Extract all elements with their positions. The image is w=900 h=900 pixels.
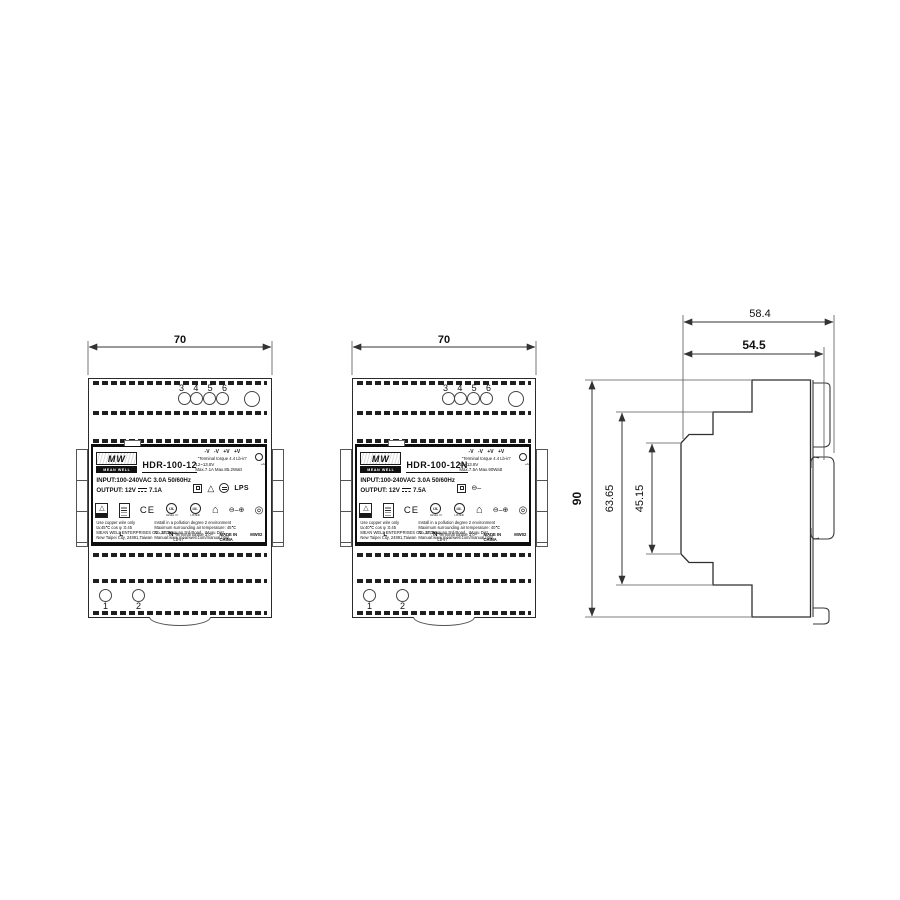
width-dimension-label: 70 (174, 334, 186, 346)
depth-body-label: 54.5 (742, 338, 766, 352)
inner-height-label: 63.65 (604, 485, 616, 513)
side-profile-outline (681, 380, 811, 617)
terminal-hole (216, 392, 229, 405)
culus-listed-icon: UL LISTED (189, 503, 202, 519)
dc-polarity-icon: ⊖–⊕ (229, 507, 245, 514)
din-rail-hook-top (811, 457, 819, 468)
vent-slots (357, 553, 531, 557)
output-rating: OUTPUT: 12V7.1A (96, 487, 162, 494)
vadj-mark: +Adj (525, 462, 531, 466)
vent-slots (357, 611, 531, 615)
cert-circle-icon (219, 483, 229, 493)
vadj-mark: +Adj (261, 462, 267, 466)
terminal-number: 1 (363, 601, 376, 611)
terminal-hole (203, 392, 216, 405)
impedance-protected-icon: ◎ (255, 506, 264, 516)
warning-box-icon: △ (95, 503, 108, 518)
vadj-potentiometer (519, 453, 527, 461)
meanwell-logo-emblem: MW (96, 452, 137, 465)
cert-triangle-icon: △ (207, 484, 214, 493)
terminal-torque-top: "Terminal torque 4.4 Lb-in" (455, 456, 517, 461)
vent-slots (93, 439, 267, 443)
line-terminal-mark: L (119, 532, 123, 538)
terminal-hole (454, 392, 467, 405)
dc-polarity-icon: ⊖– (471, 485, 481, 492)
indoor-use-icon: ⌂ (212, 505, 219, 516)
face-height-label: 45.15 (634, 485, 646, 513)
output-rating: OUTPUT: 12V7.5A (360, 487, 426, 494)
terminal-hole (442, 392, 455, 405)
culus-listed-icon: UL LISTED (453, 503, 466, 519)
warning-box-icon: △ (359, 503, 372, 518)
dc-polarity-icon: ⊖–⊕ (493, 507, 509, 514)
line-terminal-mark: L (383, 532, 387, 538)
vent-slots (357, 411, 531, 415)
front-view-hdr-100-12n: 70 3 4 5 6 MW MEAN WELL H (349, 330, 549, 635)
cert-icons-row-b: △ CE UL LEVEL VI UL LISTED ⌂ ⊖–⊕ ◎ (95, 501, 263, 520)
din-rail-hat (813, 457, 834, 539)
cert-icons-row-a: ⊖– (457, 478, 481, 498)
label-code: MW02 (514, 532, 526, 537)
width-dimension-label: 70 (438, 334, 450, 346)
label-notch (388, 440, 405, 446)
terminal-hole (190, 392, 203, 405)
product-label: MW MEAN WELL HDR-100-12 -V -V +V +V "Ter… (91, 444, 267, 546)
enclosure-outline: 3 4 5 6 MW MEAN WELL HDR-100-12 -V -V (88, 378, 272, 618)
terminal-hole (480, 392, 493, 405)
terminal-torque-top: "Terminal torque 4.4 Lb-in" (191, 456, 253, 461)
efficiency-level-icon: UL LEVEL VI (165, 503, 178, 519)
ce-mark: CE (140, 505, 155, 516)
terminal-number: 2 (396, 601, 409, 611)
impedance-protected-icon: ◎ (519, 506, 528, 516)
din-rail-hook-bottom (811, 528, 819, 539)
label-notch (124, 440, 141, 446)
dc-symbol-icon (138, 487, 147, 493)
width-dimension: 70 (349, 330, 549, 377)
made-in-text: MADE IN CHINA (220, 532, 247, 542)
vent-slots (357, 439, 531, 443)
label-bottom-row: L N "Terminal torque 3.0 Lb-in" MADE IN … (95, 532, 263, 542)
depth-total-label: 58.4 (749, 308, 770, 320)
meanwell-logo: MW MEAN WELL (360, 452, 401, 473)
ratings-block: -V -V +V +V "Terminal torque 4.4 Lb-in" … (455, 449, 517, 473)
vent-slots (93, 553, 267, 557)
ratings-block: -V -V +V +V "Terminal torque 4.4 Lb-in" … (191, 449, 253, 473)
max-ratings: Max.7.5A Max.90Watt (459, 467, 517, 473)
dc-symbol-icon (402, 487, 411, 493)
height-label: 90 (570, 492, 584, 506)
meanwell-logo: MW MEAN WELL (96, 452, 137, 473)
din-mount-ear-right (536, 449, 548, 547)
din-mount-ear-right (272, 449, 284, 547)
terminal-torque-bottom: "Terminal torque 3.0 Lb-in" (437, 532, 478, 542)
din-release-tab (413, 617, 475, 626)
max-ratings: Max.7.1A Max.85.2Watt (195, 467, 253, 473)
cert-icons-row-b: △ CE UL LEVEL VI UL LISTED ⌂ ⊖–⊕ ◎ (359, 501, 527, 520)
manual-box-icon (119, 503, 130, 518)
vadj-potentiometer (255, 453, 263, 461)
meanwell-logo-emblem: MW (360, 452, 401, 465)
label-code: MW02 (250, 532, 262, 537)
input-rating: INPUT:100-240VAC 3.0A 50/60Hz (96, 477, 191, 484)
din-clip-bottom-foot (813, 608, 829, 624)
width-dimension: 70 (85, 330, 285, 377)
vent-slots (93, 579, 267, 583)
vent-slots (93, 411, 267, 415)
din-mount-ear-left (340, 449, 352, 547)
round-hole (508, 391, 524, 407)
class-ii-icon (193, 484, 202, 493)
din-clip-top-tab (813, 383, 830, 447)
terminal-torque-bottom: "Terminal torque 3.0 Lb-in" (173, 532, 214, 542)
terminal-number: 2 (132, 601, 145, 611)
class-ii-icon (457, 484, 466, 493)
vent-slots (357, 579, 531, 583)
vent-slots (93, 611, 267, 615)
din-mount-ear-left (76, 449, 88, 547)
front-view-hdr-100-12: 70 3 4 5 6 MW MEAN WELL H (85, 330, 285, 635)
lps-mark: LPS (234, 485, 249, 492)
manual-box-icon (383, 503, 394, 518)
round-hole (244, 391, 260, 407)
side-view: 58.4 54.5 90 63.65 45.15 (555, 296, 885, 641)
din-release-tab (149, 617, 211, 626)
cert-icons-row-a: △ LPS (193, 478, 248, 498)
meanwell-logo-wordmark: MEAN WELL (96, 466, 137, 473)
input-rating: INPUT:100-240VAC 3.0A 50/60Hz (360, 477, 455, 484)
made-in-text: MADE IN CHINA (484, 532, 511, 542)
model-number: HDR-100-12 (142, 460, 197, 473)
ce-mark: CE (404, 505, 419, 516)
terminal-number: 1 (99, 601, 112, 611)
din-rail-psu-technical-drawing: 70 3 4 5 6 MW MEAN WELL H (0, 0, 900, 900)
indoor-use-icon: ⌂ (476, 505, 483, 516)
enclosure-outline: 3 4 5 6 MW MEAN WELL HDR-100-12N -V - (352, 378, 536, 618)
efficiency-level-icon: UL LEVEL VI (429, 503, 442, 519)
terminal-hole (467, 392, 480, 405)
label-bottom-row: L N "Terminal torque 3.0 Lb-in" MADE IN … (359, 532, 527, 542)
meanwell-logo-wordmark: MEAN WELL (360, 466, 401, 473)
terminal-hole (178, 392, 191, 405)
product-label: MW MEAN WELL HDR-100-12N -V -V +V +V "Te… (355, 444, 531, 546)
